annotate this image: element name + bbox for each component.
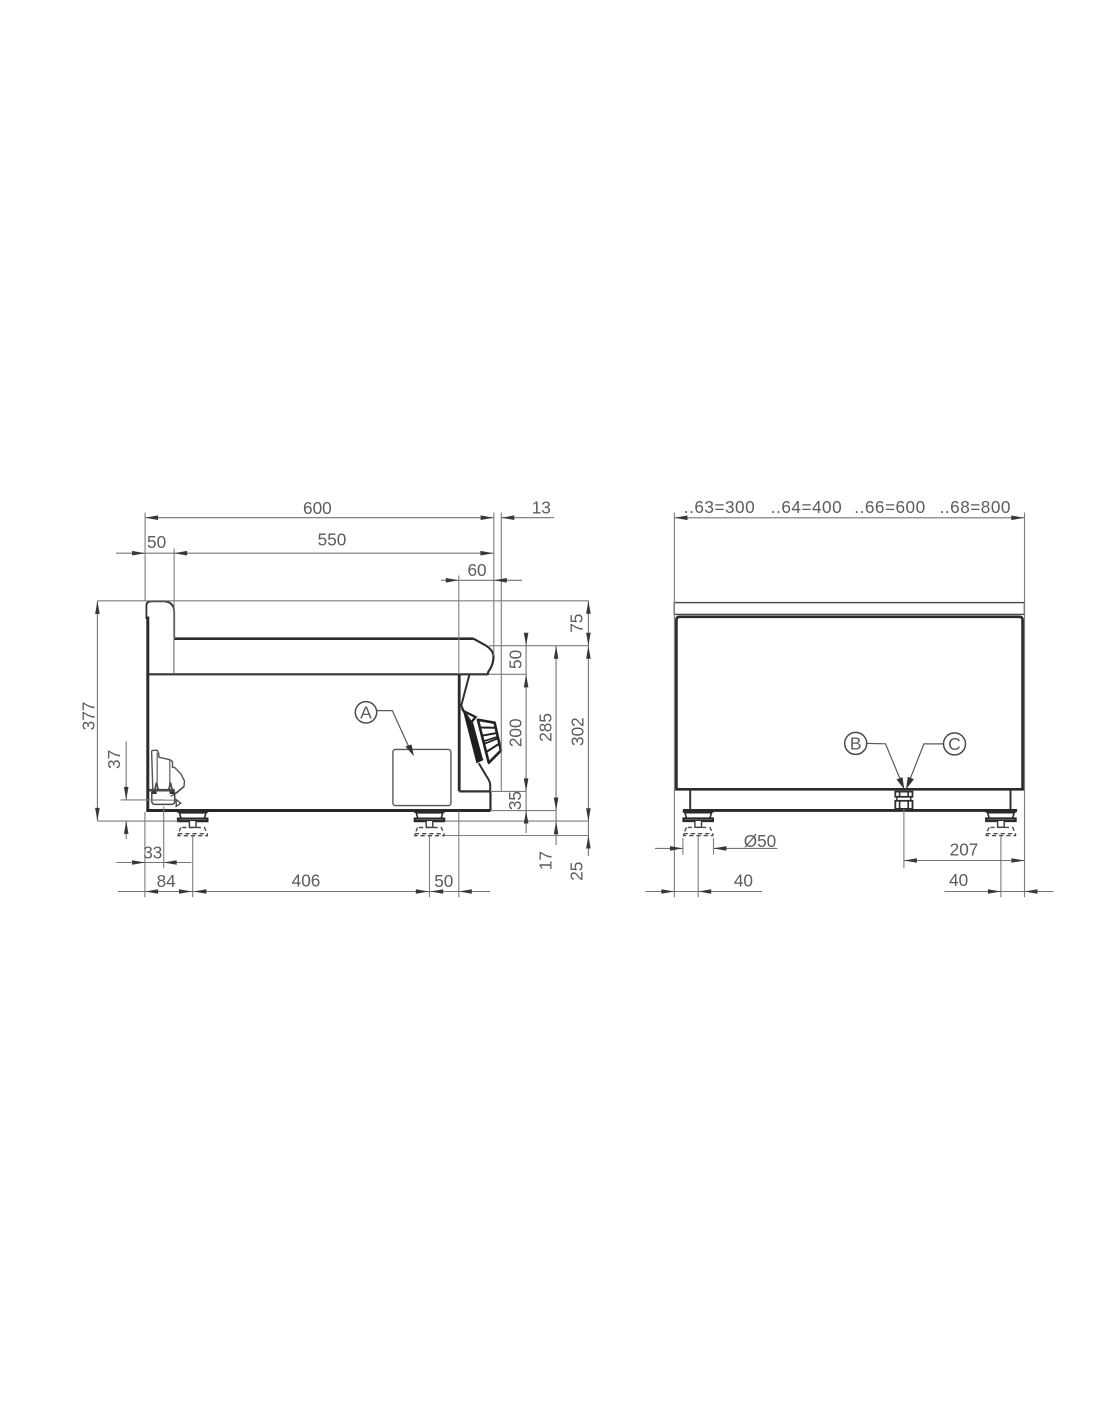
svg-text:25: 25 bbox=[566, 862, 586, 881]
svg-text:C: C bbox=[948, 734, 961, 754]
svg-text:406: 406 bbox=[292, 871, 321, 891]
svg-text:..64=400: ..64=400 bbox=[771, 497, 842, 517]
svg-text:17: 17 bbox=[536, 851, 556, 870]
svg-text:600: 600 bbox=[303, 498, 332, 518]
svg-text:50: 50 bbox=[506, 650, 526, 669]
svg-text:13: 13 bbox=[532, 497, 551, 517]
svg-text:..66=600: ..66=600 bbox=[854, 497, 925, 517]
svg-text:Ø50: Ø50 bbox=[744, 831, 777, 851]
svg-text:40: 40 bbox=[949, 870, 968, 890]
svg-text:550: 550 bbox=[318, 529, 347, 549]
svg-text:..68=800: ..68=800 bbox=[940, 497, 1011, 517]
svg-text:40: 40 bbox=[734, 870, 753, 890]
svg-text:..63=300: ..63=300 bbox=[684, 497, 755, 517]
svg-text:84: 84 bbox=[157, 871, 177, 891]
svg-text:A: A bbox=[360, 702, 372, 722]
svg-text:B: B bbox=[850, 734, 862, 754]
svg-text:50: 50 bbox=[434, 871, 453, 891]
svg-text:35: 35 bbox=[505, 791, 525, 810]
svg-text:207: 207 bbox=[950, 839, 979, 859]
svg-text:33: 33 bbox=[143, 843, 162, 863]
svg-text:60: 60 bbox=[467, 560, 486, 580]
svg-text:285: 285 bbox=[536, 713, 556, 742]
svg-text:302: 302 bbox=[567, 717, 587, 746]
svg-text:200: 200 bbox=[505, 718, 525, 747]
svg-text:37: 37 bbox=[104, 750, 124, 769]
svg-text:75: 75 bbox=[567, 614, 587, 633]
svg-text:377: 377 bbox=[79, 702, 99, 731]
svg-text:50: 50 bbox=[147, 532, 166, 552]
